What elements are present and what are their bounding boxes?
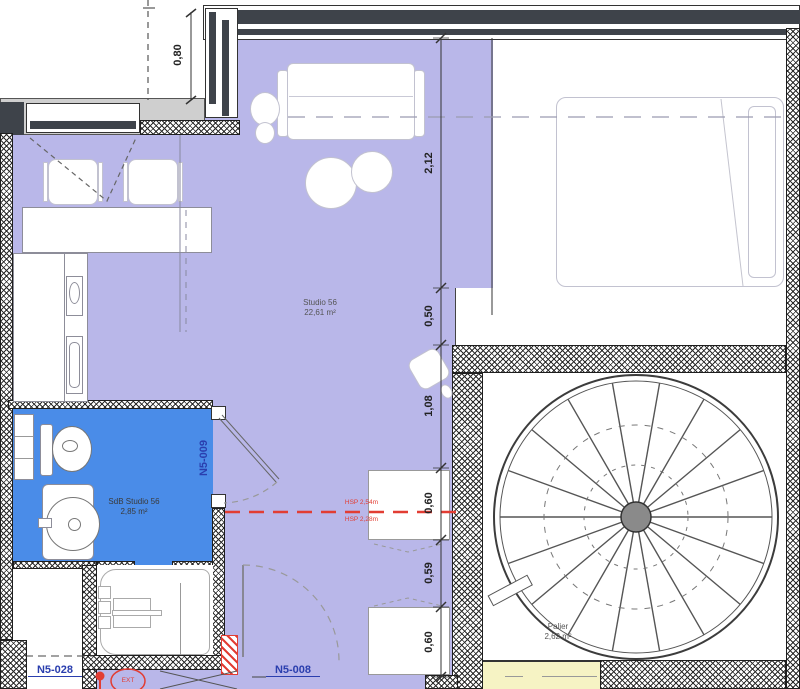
dining-table <box>22 207 212 253</box>
yellow-room-line-2 <box>542 676 597 677</box>
sofa-body <box>287 63 415 140</box>
left-window-glazing <box>30 121 136 129</box>
kitchen-counter-divider <box>64 253 65 402</box>
pilaster-bar-2 <box>222 20 229 116</box>
bottom-right-wall <box>600 660 786 689</box>
bottom-center-wall <box>425 675 458 689</box>
dim-0-80: 0,80 <box>172 35 184 75</box>
left-wall-bottom-block <box>0 640 27 689</box>
dim-0-60-a: 0,60 <box>423 483 435 523</box>
landing-area: 2,62 m² <box>518 632 598 642</box>
shower-valve-1 <box>98 586 111 599</box>
bathroom-cabinet-shelf-line2 <box>15 458 33 459</box>
sofa-back-line <box>289 96 413 97</box>
shower-valve-3 <box>98 616 111 629</box>
bathroom-door-jamb-top <box>211 406 226 420</box>
dim-0-50: 0,50 <box>423 296 435 336</box>
studio-name: Studio 56 <box>278 298 362 308</box>
landing-name: Palier <box>518 622 598 632</box>
dim-0-60-b: 0,60 <box>423 622 435 662</box>
door-label-n5-008: N5-008 <box>266 664 320 677</box>
bathroom-label: SdB Studio 56 2,85 m² <box>92 497 176 517</box>
coffee-table-large <box>305 157 357 209</box>
hsp-lower-text: HSP 2,28m <box>322 516 378 523</box>
studio-label: Studio 56 22,61 m² <box>278 298 362 318</box>
washbasin-faucet <box>38 518 52 528</box>
toilet-bowl-inner <box>62 440 78 452</box>
bathroom-area: 2,85 m² <box>92 507 176 517</box>
dim-0-59: 0,59 <box>423 553 435 593</box>
coffee-table-small <box>351 151 393 193</box>
bathroom-name: SdB Studio 56 <box>92 497 176 507</box>
left-wall <box>0 133 13 640</box>
structural-column <box>221 635 238 675</box>
right-wall <box>786 28 800 689</box>
stair-top-wall <box>452 345 786 373</box>
shower-bottom-wall <box>82 655 230 670</box>
wall-box-upper <box>368 470 450 540</box>
bathroom-door-jamb-bottom <box>211 494 226 508</box>
ext-text: EXT <box>117 677 139 684</box>
plant-blob-1 <box>250 92 280 126</box>
shower-glass-line <box>180 583 181 655</box>
bathroom-cabinet-shelf-line <box>15 436 33 437</box>
chair-1-arm-right <box>98 162 103 202</box>
yellow-room <box>483 660 600 689</box>
yellow-room-line-1 <box>505 676 523 677</box>
wall-step-niche <box>455 288 493 345</box>
chair-2-arm-right <box>178 162 183 202</box>
landing-label: Palier 2,62 m² <box>518 622 598 642</box>
floor-plan: Studio 56 22,61 m² SdB Studio 56 2,85 m²… <box>0 0 800 689</box>
kitchen-cooktop-inner <box>69 342 80 388</box>
stair-left-wall <box>452 373 483 689</box>
hsp-upper-text: HSP 2,54m <box>322 499 378 506</box>
window-glazing-stripe-2 <box>212 29 800 35</box>
kitchen-sink-basin <box>69 282 80 304</box>
chair-1-seat <box>48 159 98 205</box>
dim-2-12: 2,12 <box>423 143 435 183</box>
studio-area: 22,61 m² <box>278 308 362 318</box>
washbasin-drain <box>68 518 81 531</box>
shower-arm <box>112 610 162 616</box>
plant-blob-2 <box>255 122 275 144</box>
shower-valve-2 <box>98 601 111 614</box>
door-label-n5-028: N5-028 <box>28 664 82 677</box>
shower-left-wall <box>82 565 97 689</box>
pilaster-bar-1 <box>209 12 216 104</box>
top-left-wall-endcap <box>0 102 24 135</box>
door-label-n5-009: N5-009 <box>198 428 210 488</box>
chair-2-seat <box>128 159 178 205</box>
top-left-wall-hatch <box>140 120 240 135</box>
stair-room-floor <box>483 373 786 660</box>
dim-1-08: 1,08 <box>423 386 435 426</box>
wall-box-lower <box>368 607 450 675</box>
bathroom-cabinet <box>14 414 34 480</box>
bed-pillow <box>748 106 776 278</box>
window-glazing-stripe-1 <box>208 10 800 24</box>
